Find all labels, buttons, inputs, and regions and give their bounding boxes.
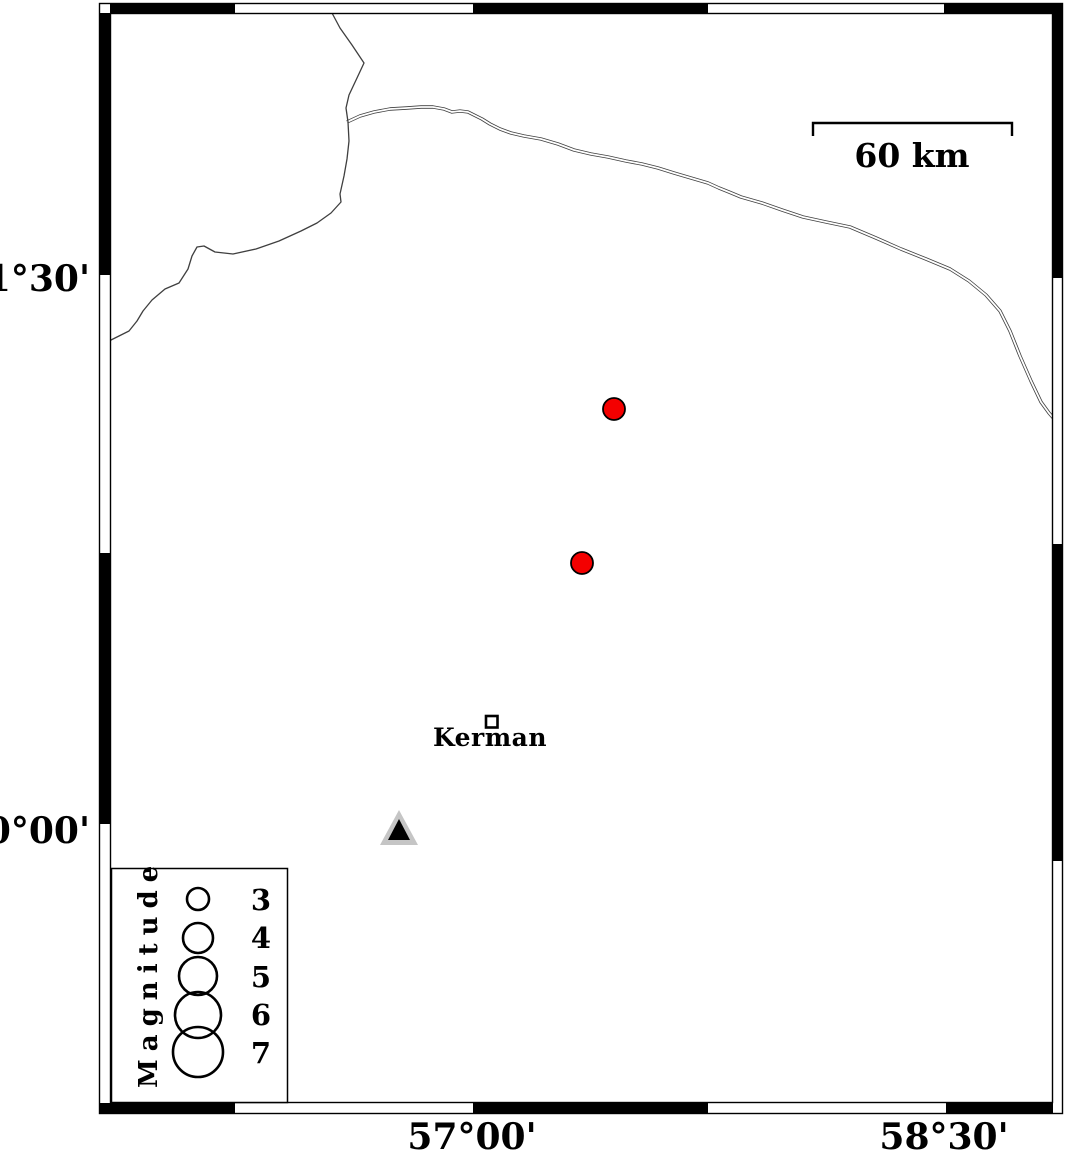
frame-corner-bottom-left bbox=[99, 1103, 110, 1114]
border-segment bbox=[1053, 13, 1063, 278]
axis-label-lon-5830: 58°30' bbox=[879, 1116, 1008, 1154]
axis-label-lon-5700: 57°00' bbox=[407, 1116, 536, 1154]
border-segment bbox=[110, 3, 235, 13]
border-segment bbox=[110, 1103, 235, 1114]
legend-label-m6: 6 bbox=[251, 998, 271, 1032]
border-segment bbox=[473, 3, 708, 13]
frame-corner-top-right bbox=[1053, 3, 1063, 13]
boundary-line bbox=[101, 13, 364, 345]
border-segment bbox=[473, 1103, 708, 1114]
legend-label-m5: 5 bbox=[251, 960, 271, 994]
border-segment bbox=[1053, 544, 1063, 861]
epicenter-marker bbox=[603, 398, 625, 420]
border-segment bbox=[99, 553, 110, 824]
legend-label-m7: 7 bbox=[251, 1036, 271, 1070]
border-segment bbox=[946, 1103, 1053, 1114]
legend-title: Magnitude bbox=[134, 858, 164, 1088]
border-segment bbox=[944, 3, 1053, 13]
axis-label-lat-3000: 30°00' bbox=[0, 810, 90, 852]
scale-bar: 60 km bbox=[813, 123, 1012, 175]
legend-label-m3: 3 bbox=[251, 883, 271, 917]
epicenter-marker bbox=[571, 552, 593, 574]
scale-bar-bracket bbox=[813, 123, 1012, 136]
axis-label-lat-3130: 31°30' bbox=[0, 258, 90, 300]
legend-label-m4: 4 bbox=[251, 921, 271, 955]
magnitude-legend: Magnitude 3 4 5 6 7 bbox=[112, 858, 288, 1103]
border-segment bbox=[99, 13, 110, 275]
city-marker: Kerman bbox=[433, 716, 547, 752]
river-lines bbox=[101, 13, 1056, 421]
epicenter-markers bbox=[571, 398, 625, 574]
station-marker bbox=[380, 810, 418, 845]
scale-bar-label: 60 km bbox=[854, 136, 969, 175]
city-label: Kerman bbox=[433, 723, 547, 752]
map-canvas: 31°30' 30°00' 57°00' 58°30' 60 km Kerman bbox=[0, 0, 1066, 1154]
seismicity-map-figure: 31°30' 30°00' 57°00' 58°30' 60 km Kerman bbox=[0, 0, 1066, 1154]
